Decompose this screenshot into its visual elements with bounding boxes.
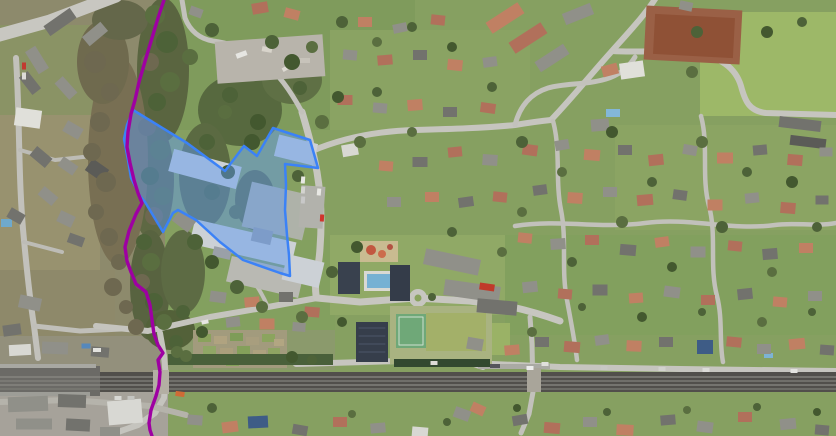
map-svg [0, 0, 836, 436]
aerial-map-view [0, 0, 836, 436]
